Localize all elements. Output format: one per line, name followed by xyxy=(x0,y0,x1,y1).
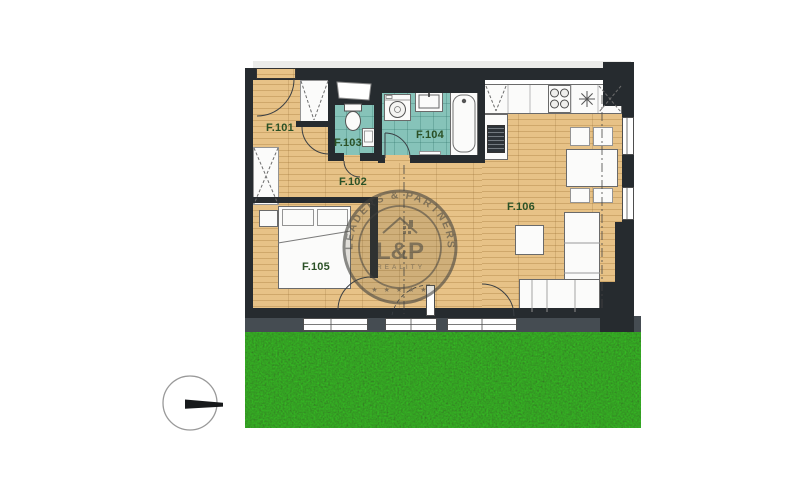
bathroom-washbasin xyxy=(415,92,443,112)
wall-bedroom-east xyxy=(370,310,378,316)
coffee-table xyxy=(515,225,544,255)
entrance-door-leaf xyxy=(256,68,296,79)
room-label-f104: F.104 xyxy=(408,129,452,141)
hall-closet xyxy=(300,80,329,122)
grass-area xyxy=(245,332,641,428)
washing-machine xyxy=(384,94,411,121)
bathroom-door-opening xyxy=(385,155,410,163)
dining-table xyxy=(566,149,618,187)
room-label-f106: F.106 xyxy=(499,201,543,213)
bathtub xyxy=(450,92,478,156)
wall-corner-block xyxy=(600,282,634,332)
balcony-door-leaf xyxy=(426,285,435,316)
kitchen-sink-unit xyxy=(487,125,505,153)
dining-chair xyxy=(593,127,613,146)
wall-f103-south xyxy=(328,153,344,161)
stove xyxy=(548,85,571,113)
wall-above-bath xyxy=(378,80,482,93)
right-window xyxy=(622,117,634,155)
pillow xyxy=(317,209,348,226)
wall-right xyxy=(622,80,634,117)
nightstand xyxy=(259,210,278,227)
wall-f104-south xyxy=(410,155,482,163)
right-window xyxy=(622,187,634,220)
room-label-f103: F.103 xyxy=(326,137,370,149)
dining-chair xyxy=(593,188,613,203)
wall-f104-south xyxy=(378,155,385,163)
wall-top xyxy=(245,68,622,80)
wall-right xyxy=(622,155,634,187)
floor-plan: F.101 F.103 F.102 F.104 F.106 F.105 xyxy=(0,0,800,500)
room-label-f102: F.102 xyxy=(331,176,375,188)
north-needle xyxy=(185,400,223,409)
living-balcony-door xyxy=(447,318,517,331)
pillow xyxy=(282,209,314,226)
dining-chair xyxy=(570,188,590,203)
north-indicator xyxy=(163,376,223,430)
corridor-balcony-door xyxy=(385,318,437,331)
dining-chair xyxy=(570,127,590,146)
room-label-f101: F.101 xyxy=(258,122,302,134)
bedroom-window xyxy=(303,318,368,331)
wall-bedroom-north xyxy=(252,197,378,203)
wall-bedroom-east xyxy=(370,197,378,278)
wall-shaft xyxy=(330,80,378,105)
room-label-f105: F.105 xyxy=(294,261,338,273)
wall-left xyxy=(245,68,253,316)
wall-f104-east xyxy=(478,80,485,163)
